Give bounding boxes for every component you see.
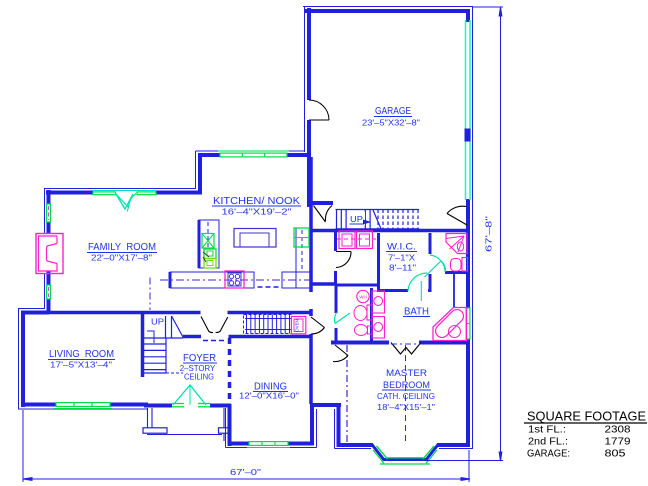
svg-text:67'–0": 67'–0" <box>230 467 261 477</box>
svg-text:22'–0"X17'–8": 22'–0"X17'–8" <box>91 253 152 263</box>
svg-text:805: 805 <box>605 449 627 460</box>
svg-text:LIVING ROOM: LIVING ROOM <box>49 349 114 360</box>
svg-text:BATH: BATH <box>404 307 429 318</box>
svg-text:W.I.C.: W.I.C. <box>387 242 416 253</box>
svg-text:7'–1"X: 7'–1"X <box>388 253 415 263</box>
svg-text:FAMILY ROOM: FAMILY ROOM <box>88 242 156 253</box>
svg-text:2308: 2308 <box>605 425 632 436</box>
svg-text:1st FL.:: 1st FL.: <box>528 425 566 436</box>
svg-text:UP: UP <box>350 215 363 224</box>
svg-text:GARAGE:: GARAGE: <box>527 449 570 460</box>
svg-text:18'–4"X15'–1": 18'–4"X15'–1" <box>377 402 435 412</box>
svg-text:GARAGE: GARAGE <box>375 106 411 117</box>
svg-text:MASTER: MASTER <box>386 368 427 379</box>
svg-text:2nd FL.:: 2nd FL.: <box>528 437 568 448</box>
svg-text:17'–5"X13'–4": 17'–5"X13'–4" <box>50 360 112 370</box>
svg-text:WH: WH <box>359 295 367 300</box>
svg-text:CEILING: CEILING <box>184 372 214 382</box>
svg-text:CATH. CEILING: CATH. CEILING <box>377 391 435 401</box>
svg-text:8'–11": 8'–11" <box>389 263 416 273</box>
svg-text:1779: 1779 <box>605 437 632 448</box>
svg-text:KITCHEN/ NOOK: KITCHEN/ NOOK <box>213 196 300 207</box>
svg-text:23'–5"X32'–8": 23'–5"X32'–8" <box>362 118 420 128</box>
svg-text:16'–4"X19'–2": 16'–4"X19'–2" <box>222 207 292 217</box>
svg-text:67'–8": 67'–8" <box>484 216 494 252</box>
svg-text:SQUARE FOOTAGE: SQUARE FOOTAGE <box>527 409 646 424</box>
svg-text:OVEN: OVEN <box>295 319 300 331</box>
svg-text:BEDROOM: BEDROOM <box>383 380 430 391</box>
svg-text:UP: UP <box>151 318 164 327</box>
svg-text:12'–0"X16'–0": 12'–0"X16'–0" <box>239 391 299 401</box>
